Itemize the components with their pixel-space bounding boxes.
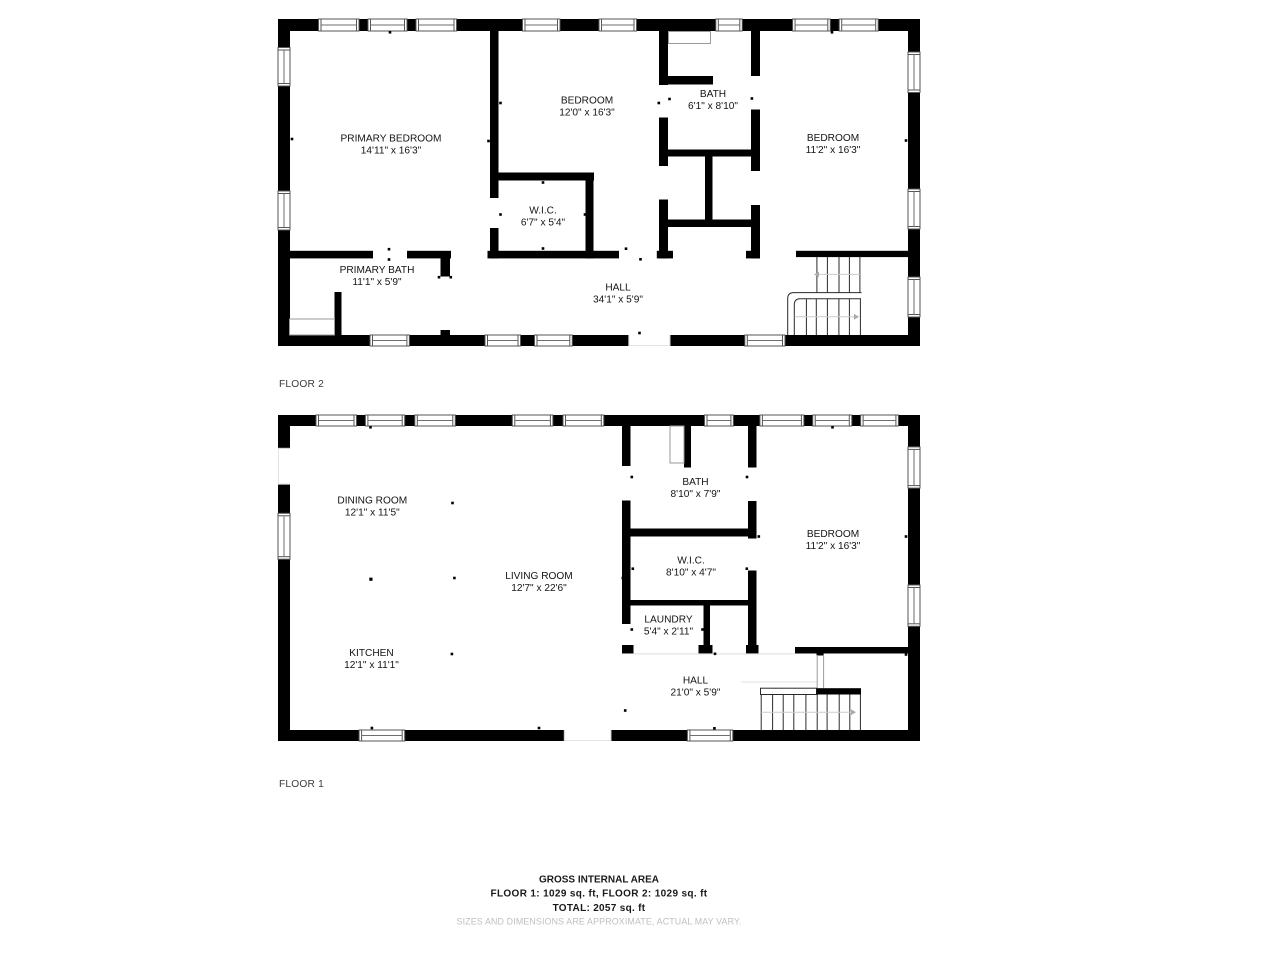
svg-text:12'1" x 11'1": 12'1" x 11'1" [344, 660, 399, 671]
svg-text:8'10" x 4'7": 8'10" x 4'7" [666, 568, 716, 579]
svg-text:TOTAL: 2057 sq. ft: TOTAL: 2057 sq. ft [553, 903, 646, 914]
svg-text:BATH: BATH [682, 477, 708, 488]
svg-text:GROSS INTERNAL AREA: GROSS INTERNAL AREA [539, 875, 659, 886]
svg-text:LAUNDRY: LAUNDRY [644, 615, 692, 626]
svg-text:PRIMARY BATH: PRIMARY BATH [340, 265, 415, 276]
svg-text:W.I.C.: W.I.C. [677, 556, 705, 567]
svg-text:BATH: BATH [700, 89, 726, 100]
svg-text:BEDROOM: BEDROOM [561, 96, 613, 107]
svg-text:FLOOR 1: 1029 sq. ft, FLOOR 2:: FLOOR 1: 1029 sq. ft, FLOOR 2: 1029 sq. … [491, 889, 708, 900]
svg-text:5'4" x 2'11": 5'4" x 2'11" [644, 627, 694, 638]
svg-text:11'2" x 16'3": 11'2" x 16'3" [806, 541, 861, 552]
svg-text:8'10" x 7'9": 8'10" x 7'9" [671, 489, 721, 500]
svg-text:6'7" x 5'4": 6'7" x 5'4" [521, 218, 566, 229]
svg-text:12'7" x 22'6": 12'7" x 22'6" [511, 583, 567, 594]
svg-text:HALL: HALL [683, 676, 709, 687]
svg-text:34'1" x 5'9": 34'1" x 5'9" [593, 295, 643, 306]
svg-text:PRIMARY BEDROOM: PRIMARY BEDROOM [341, 134, 442, 145]
svg-text:FLOOR 1: FLOOR 1 [279, 779, 324, 790]
svg-text:12'1" x 11'5": 12'1" x 11'5" [345, 508, 400, 519]
svg-text:FLOOR 2: FLOOR 2 [279, 379, 324, 390]
svg-text:LIVING ROOM: LIVING ROOM [505, 571, 573, 582]
svg-text:21'0" x 5'9": 21'0" x 5'9" [671, 688, 721, 699]
svg-text:11'2" x 16'3": 11'2" x 16'3" [806, 145, 861, 156]
svg-text:6'1" x 8'10": 6'1" x 8'10" [688, 101, 738, 112]
svg-text:HALL: HALL [605, 283, 631, 294]
svg-text:KITCHEN: KITCHEN [349, 648, 393, 659]
svg-text:SIZES AND DIMENSIONS ARE APPRO: SIZES AND DIMENSIONS ARE APPROXIMATE, AC… [457, 917, 742, 927]
svg-text:DINING ROOM: DINING ROOM [337, 496, 407, 507]
svg-text:12'0" x 16'3": 12'0" x 16'3" [559, 108, 615, 119]
svg-text:BEDROOM: BEDROOM [807, 133, 859, 144]
svg-text:14'11" x 16'3": 14'11" x 16'3" [361, 146, 422, 157]
svg-text:BEDROOM: BEDROOM [807, 529, 859, 540]
svg-text:W.I.C.: W.I.C. [529, 206, 557, 217]
svg-text:11'1" x 5'9": 11'1" x 5'9" [352, 277, 402, 288]
